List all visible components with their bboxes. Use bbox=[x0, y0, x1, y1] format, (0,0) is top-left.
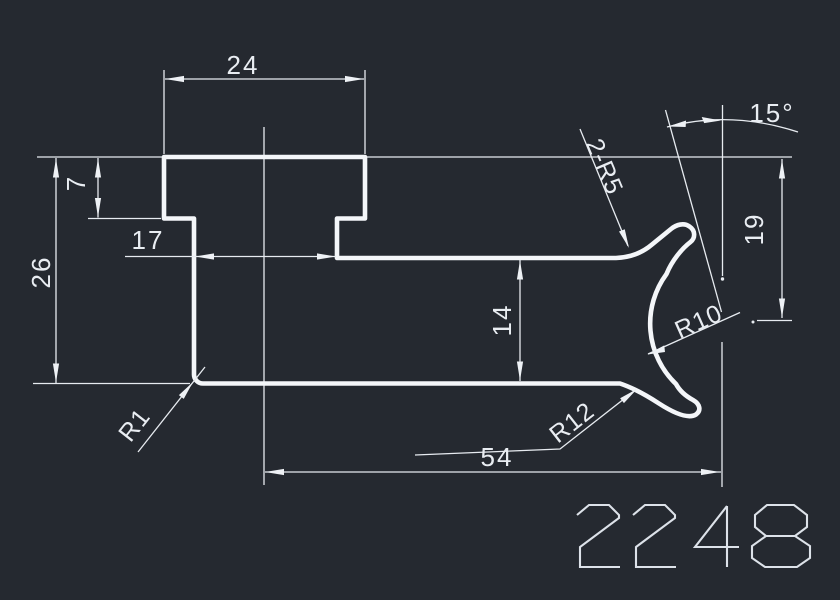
dim-r10-label: R10 bbox=[671, 299, 727, 344]
dim-angle-label: 15° bbox=[749, 98, 794, 128]
dim-r12-label: R12 bbox=[544, 397, 600, 449]
part-number-digit bbox=[577, 505, 620, 567]
cad-viewport: 24 7 26 17 14 19 bbox=[0, 0, 840, 600]
dim-hat-height: 7 bbox=[61, 158, 161, 219]
r12-leader-line bbox=[415, 390, 636, 456]
dim-17-label: 17 bbox=[132, 225, 165, 255]
dim-lip-fillets: 2-R5 bbox=[580, 129, 632, 249]
arrowhead-up bbox=[53, 159, 59, 178]
arrowhead-up bbox=[95, 159, 101, 178]
dim-19-label: 19 bbox=[739, 213, 769, 246]
part-number-digit bbox=[695, 506, 739, 567]
arrowhead-right bbox=[701, 469, 720, 475]
arrowhead bbox=[619, 229, 632, 249]
part-number-digit bbox=[752, 505, 810, 567]
dim-corner-radius: R1 bbox=[113, 367, 205, 452]
dim-14-label: 14 bbox=[487, 304, 517, 337]
dim-r1-label: R1 bbox=[113, 403, 156, 447]
dim-hook-inner-radius: R10 bbox=[647, 299, 740, 359]
dim-bottom-width: 54 bbox=[265, 342, 722, 487]
arrowhead-left bbox=[265, 469, 284, 475]
dim-7-label: 7 bbox=[61, 175, 91, 191]
arrowhead-up bbox=[779, 160, 785, 179]
arrowhead-down bbox=[517, 362, 523, 381]
dim-neck-width: 17 bbox=[125, 225, 336, 260]
dim-hook-outer-radius: R12 bbox=[415, 387, 639, 455]
dim-right-height: 19 bbox=[739, 159, 792, 324]
arrowhead-left bbox=[165, 76, 184, 82]
part-number bbox=[577, 505, 810, 567]
arrowhead-up bbox=[517, 261, 523, 280]
part-number-digit bbox=[633, 505, 676, 567]
arrowhead-right bbox=[317, 253, 336, 259]
dim-lip-angle: 15° bbox=[666, 98, 799, 312]
dim-24-label: 24 bbox=[227, 50, 260, 80]
arrowhead-down bbox=[95, 198, 101, 217]
arrowhead-down bbox=[53, 364, 59, 383]
arrowhead-right bbox=[345, 76, 364, 82]
r1-leader-line bbox=[138, 367, 205, 452]
arrowhead-left bbox=[195, 253, 214, 259]
dim-web-height: 14 bbox=[487, 260, 523, 381]
dim-r5-label: 2-R5 bbox=[580, 135, 629, 200]
drawing-canvas: 24 7 26 17 14 19 bbox=[0, 0, 840, 600]
vertex-dot bbox=[721, 277, 724, 280]
profile-outline bbox=[164, 157, 699, 416]
dim-26-label: 26 bbox=[26, 256, 56, 289]
arrowhead-down bbox=[779, 299, 785, 318]
extension-dot bbox=[752, 321, 755, 324]
dim-54-label: 54 bbox=[481, 442, 514, 472]
angle-slant-leg bbox=[666, 110, 722, 312]
